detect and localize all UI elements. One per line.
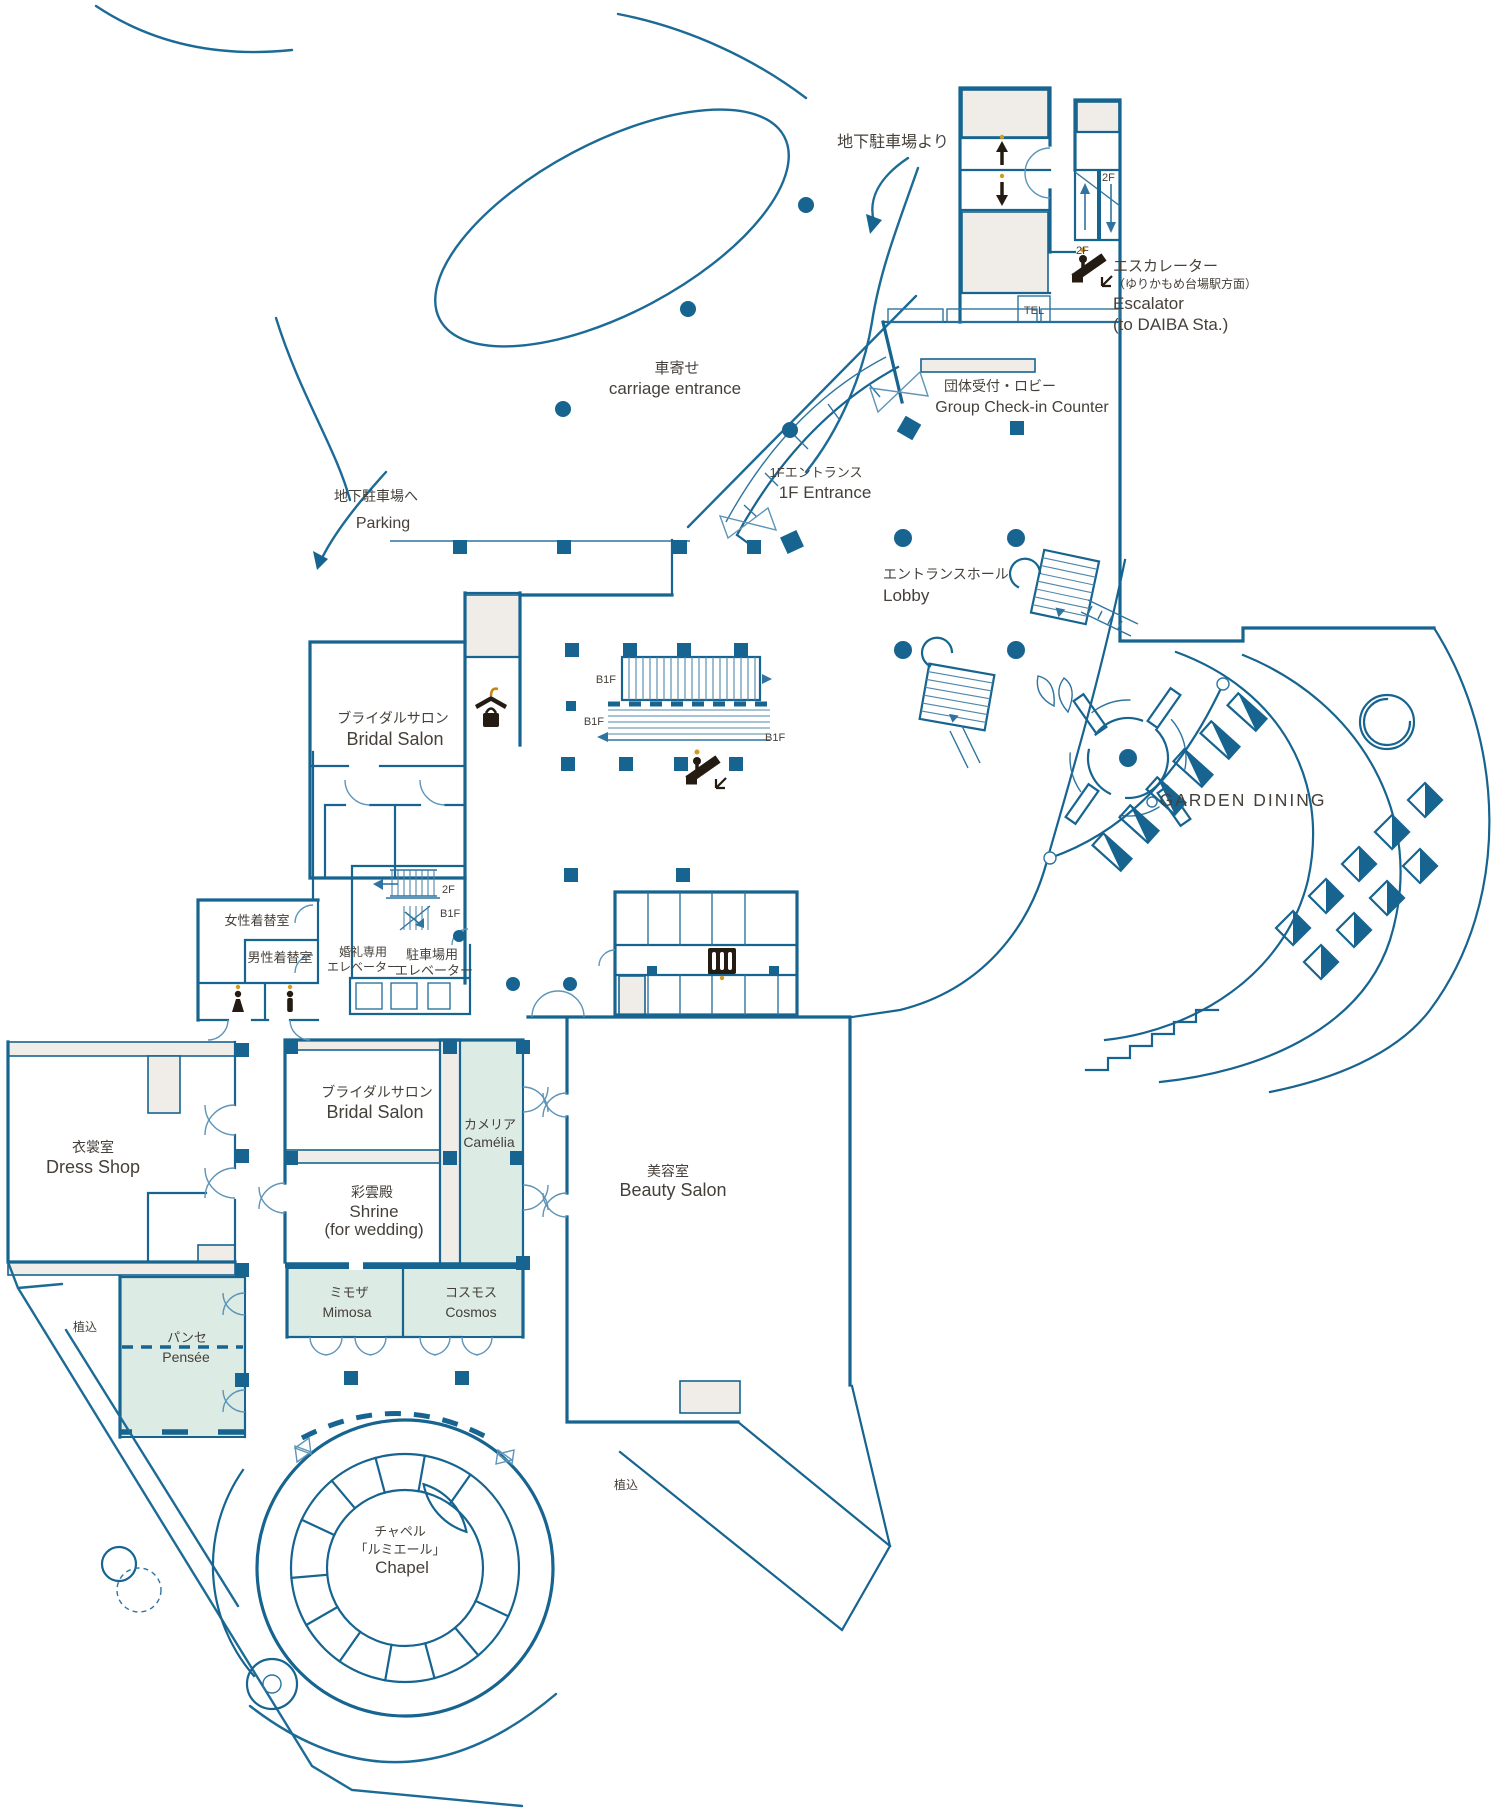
label-chapel-jp1: チャペル: [374, 1524, 426, 1539]
grand-stairs: [597, 657, 775, 742]
checkin-counter-desk: [921, 359, 1035, 372]
escalator-icon-2: [686, 750, 726, 789]
label-entrance-jp: 1Fエントランス: [770, 465, 863, 480]
label-carriage-en: carriage entrance: [609, 379, 741, 398]
label-chapel-en: Chapel: [375, 1558, 429, 1577]
label-shrine-jp: 彩雲殿: [351, 1184, 393, 1200]
lobby-stairs: [920, 550, 1138, 768]
label-pensee-en: Pensée: [162, 1349, 210, 1365]
label-from-parking: 地下駐車場より: [837, 133, 949, 151]
label-escalator-jp: エスカレーター: [1113, 258, 1218, 275]
label-lobby-en: Lobby: [883, 586, 930, 605]
label-parking-elevator-1: 駐車場用: [406, 947, 458, 962]
room-mimosa: [287, 1268, 403, 1337]
label-2f-bottom: 2F: [1076, 245, 1089, 257]
label-escalator-en: Escalator: [1113, 294, 1184, 313]
label-cosmos-jp: コスモス: [445, 1285, 497, 1300]
label-mens-changing: 男性着替室: [247, 950, 312, 965]
label-b1f-stair-1: B1F: [596, 674, 616, 686]
label-cosmos-en: Cosmos: [445, 1304, 496, 1320]
label-camelia-jp: カメリア: [464, 1117, 516, 1132]
label-tel: TEL: [1024, 305, 1044, 317]
label-carriage-jp: 車寄せ: [654, 359, 699, 377]
label-womens-changing: 女性着替室: [224, 913, 289, 928]
label-bridal-salon-1-en: Bridal Salon: [346, 729, 443, 749]
label-shrine-en1: Shrine: [349, 1202, 398, 1221]
label-b1f-stair-2: B1F: [584, 716, 604, 728]
label-beauty-salon-en: Beauty Salon: [619, 1180, 726, 1200]
label-garden-dining: GARDEN DINING: [1160, 790, 1327, 810]
woman-icon: [232, 985, 244, 1012]
label-mimosa-jp: ミモザ: [329, 1285, 368, 1300]
label-bridal-salon-2-en: Bridal Salon: [326, 1102, 423, 1122]
floor-plan: 地下駐車場より 2F 2F TEL エスカレーター （ゆりかもめ台場駅方面） E…: [0, 0, 1505, 1812]
label-parking-elevator-2: エレベーター: [395, 963, 473, 978]
label-escalator-dest: (to DAIBA Sta.): [1113, 315, 1228, 334]
carriage-loop: [400, 61, 824, 394]
label-group-checkin-en: Group Check-in Counter: [935, 399, 1109, 416]
label-planting-1: 植込: [73, 1319, 97, 1334]
spiral-feature: [1360, 695, 1414, 749]
garden-tables: [1276, 783, 1442, 979]
walls: [8, 88, 1434, 1806]
room-cosmos: [403, 1268, 523, 1337]
plant-icon: [1037, 676, 1072, 712]
label-mimosa-en: Mimosa: [322, 1304, 371, 1320]
label-wedding-elevator-1: 婚礼専用: [339, 944, 387, 959]
label-group-checkin-jp: 団体受付・ロビー: [944, 378, 1056, 394]
label-dress-shop-en: Dress Shop: [46, 1157, 140, 1177]
label-bridal-salon-1-jp: ブライダルサロン: [337, 710, 448, 726]
label-b1f-west: B1F: [440, 908, 460, 920]
label-wedding-elevator-2: エレベーター: [327, 960, 399, 974]
label-pensee-jp: パンセ: [167, 1330, 207, 1345]
label-bridal-salon-2-jp: ブライダルサロン: [321, 1084, 432, 1100]
label-to-parking-en: Parking: [356, 515, 410, 532]
elevator-up-icon: [996, 135, 1008, 165]
label-beauty-salon-jp: 美容室: [647, 1163, 689, 1179]
label-dress-shop-jp: 衣裳室: [72, 1139, 114, 1155]
label-2f-west: 2F: [442, 884, 455, 896]
label-entrance-en: 1F Entrance: [779, 483, 872, 502]
label-chapel-jp2: 「ルミエール」: [354, 1542, 445, 1557]
chapel: [102, 1413, 556, 1762]
coat-check-icon: [475, 689, 507, 727]
label-escalator-dir: （ゆりかもめ台場駅方面）: [1113, 276, 1257, 291]
man-icon: [287, 985, 293, 1012]
elevator-down-icon: [996, 174, 1008, 206]
label-2f-top: 2F: [1102, 172, 1115, 184]
label-planting-2: 植込: [614, 1477, 638, 1492]
chapel-approach: [302, 1413, 492, 1440]
label-to-parking-jp: 地下駐車場へ: [334, 488, 418, 504]
label-camelia-en: Camélia: [463, 1134, 515, 1150]
label-shrine-en2: (for wedding): [324, 1220, 423, 1239]
label-b1f-stair-3: B1F: [765, 732, 785, 744]
label-lobby-jp: エントランスホール: [883, 566, 1009, 582]
